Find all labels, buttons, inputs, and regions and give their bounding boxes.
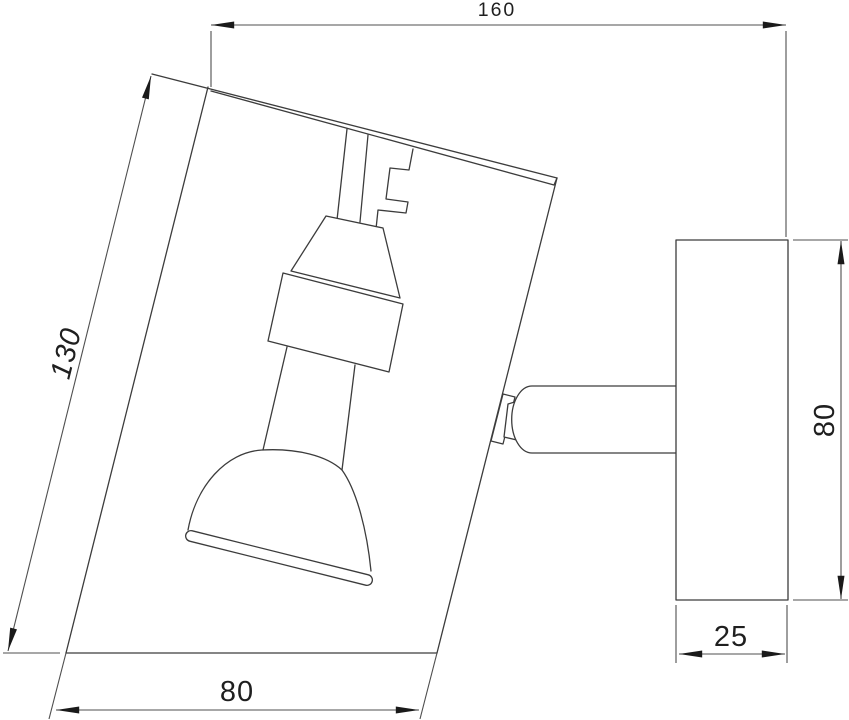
technical-drawing-canvas: 160 130 80 25 80 [0,0,849,720]
dim-label-80-bottom: 80 [220,676,254,708]
lamp-step-bracket [376,149,413,229]
lamp-stem [337,129,368,222]
dim-label-25: 25 [714,621,748,653]
shade-left-edge [66,87,208,653]
dim-label-160: 160 [478,0,517,21]
extension-line-shade-right [420,653,437,719]
extension-line-shade-left [49,653,66,719]
swivel-arm [512,386,676,453]
lamp-neck [263,347,355,470]
shade-top-flange-inner [211,91,557,185]
dim-label-130: 130 [45,325,88,383]
shade-top-flange-outer [152,74,557,178]
dim-label-80-right: 80 [809,403,841,437]
lamp-dimension-drawing: 160 130 80 25 80 [0,0,849,720]
bell-rim-face [191,536,367,580]
mounting-assembly [491,240,788,600]
lamp-assembly [188,129,413,580]
wall-plate [676,240,788,600]
